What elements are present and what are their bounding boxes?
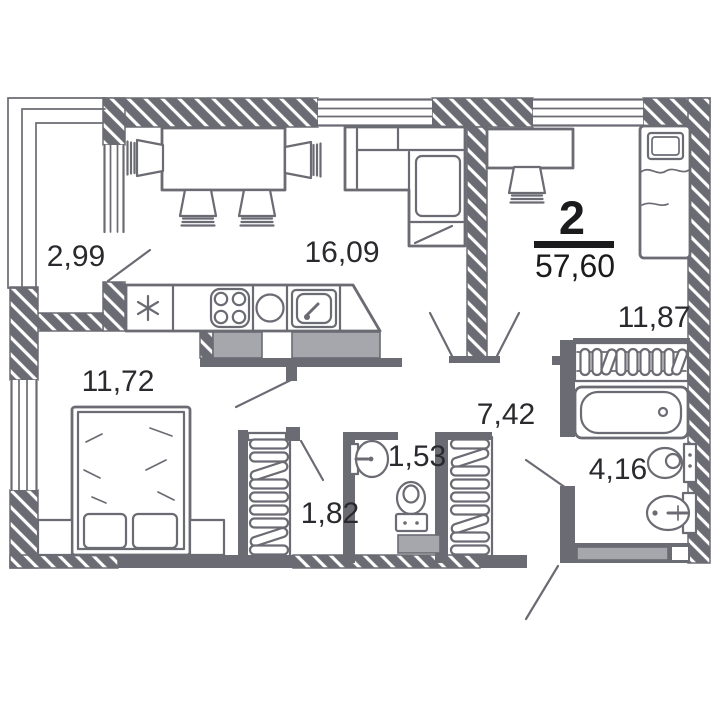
area-label-bedroom: 11,72 xyxy=(82,365,155,398)
rooms-count-label: 2 xyxy=(559,191,585,244)
nightstand-right xyxy=(190,520,224,555)
wardrobe-left-wall xyxy=(238,430,248,563)
bathroom-fixtures xyxy=(575,343,696,533)
wardrobe-rack-left xyxy=(250,440,289,555)
childroom-furniture xyxy=(487,126,690,258)
pillow xyxy=(84,514,126,548)
desk xyxy=(487,129,573,168)
doormat xyxy=(577,547,668,560)
bathroom-left-wall-upper xyxy=(560,340,575,437)
bathtub xyxy=(575,387,688,438)
hall-opening-caps xyxy=(449,356,500,363)
entry-door-swing xyxy=(526,566,558,619)
dining-chair xyxy=(285,142,321,178)
left-wall-upper xyxy=(10,287,38,380)
dining-set xyxy=(128,128,321,226)
living-hall-wall-stub xyxy=(467,127,487,358)
window-bedroom xyxy=(10,380,38,490)
dining-chair xyxy=(239,190,275,226)
area-label-bathroom: 4,16 xyxy=(589,453,647,486)
single-bed xyxy=(640,126,690,258)
corner-sofa xyxy=(345,127,465,246)
window-childroom xyxy=(533,98,643,127)
top-wall-left xyxy=(105,98,318,127)
pillow xyxy=(133,514,177,548)
bathroom-toilet xyxy=(648,444,696,482)
area-label-wardrobe: 1,82 xyxy=(301,497,359,530)
kitchen-sink-icon xyxy=(292,290,336,327)
wc-toilet xyxy=(396,482,427,531)
hob-icon xyxy=(211,289,249,327)
bottom-wall-hatch-mid xyxy=(293,555,480,568)
floor-plan: 2,99 16,09 11,72 11,87 7,42 1,82 1,53 4,… xyxy=(0,0,720,720)
balcony-door-swing xyxy=(108,250,150,281)
wardrobe-door-stub xyxy=(286,427,300,441)
wardrobe-door-swing xyxy=(301,441,323,480)
balcony-divider-top xyxy=(103,98,125,145)
apartment-summary: 2 57,60 xyxy=(534,191,615,284)
round-basin-icon xyxy=(257,295,284,322)
area-label-child-room: 11,87 xyxy=(618,301,691,334)
kitchen-counter xyxy=(126,285,380,358)
area-label-wc: 1,53 xyxy=(388,440,446,473)
area-label-living-kitchen: 16,09 xyxy=(304,236,379,269)
top-wall-mid xyxy=(432,98,533,127)
bathroom-sink xyxy=(647,493,696,533)
dining-chair xyxy=(180,190,216,226)
threshold-inset xyxy=(672,547,688,560)
dining-table xyxy=(162,128,285,190)
balcony-divider-bottom xyxy=(103,282,125,331)
bathroom-left-wall-lower xyxy=(560,486,575,563)
kitchen-base-cabinet-right xyxy=(292,332,380,358)
total-area-label: 57,60 xyxy=(535,248,615,284)
nightstand-left xyxy=(38,520,72,555)
kitchen-base-cabinet-left xyxy=(213,332,262,358)
living-opening-splay xyxy=(430,313,452,356)
bedroom-door-stub xyxy=(286,367,297,381)
area-label-balcony: 2,99 xyxy=(47,240,105,273)
balcony-bottom-wall xyxy=(33,313,103,331)
window-living xyxy=(318,98,432,127)
bottom-wall-hatch-left xyxy=(10,555,118,568)
bathroom-door-swing xyxy=(526,460,566,488)
childroom-opening-splay xyxy=(497,313,519,356)
double-bed xyxy=(72,407,190,555)
kitchen-wall-wedge xyxy=(200,332,213,358)
hall-rack xyxy=(451,440,490,555)
kitchen-bedroom-wall xyxy=(200,358,402,367)
desk-chair xyxy=(509,167,545,203)
window-balcony-divider xyxy=(103,145,125,232)
area-label-hall: 7,42 xyxy=(477,398,535,431)
wc-pedestal xyxy=(398,535,440,553)
summary-divider xyxy=(534,241,614,248)
dining-chair xyxy=(128,140,164,176)
bedroom-door-swing xyxy=(236,380,291,407)
towel-radiator xyxy=(575,343,688,381)
